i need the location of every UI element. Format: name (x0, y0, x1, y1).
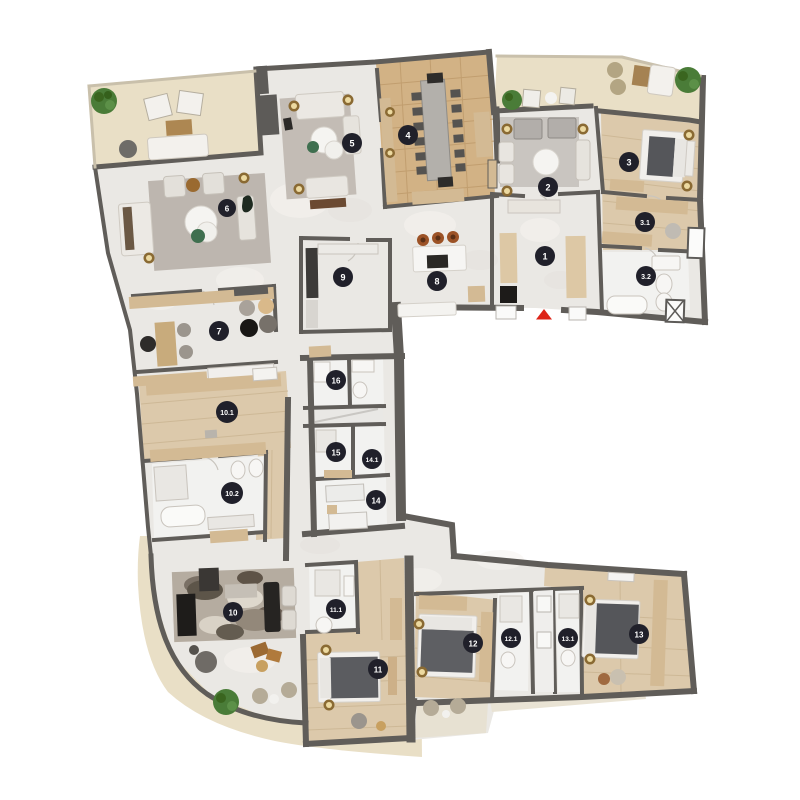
svg-text:14.1: 14.1 (366, 457, 379, 464)
svg-text:10: 10 (229, 609, 238, 618)
svg-text:10.2: 10.2 (225, 491, 239, 498)
svg-text:11: 11 (374, 666, 383, 675)
svg-text:4: 4 (405, 131, 410, 141)
svg-text:9: 9 (340, 273, 345, 283)
svg-text:16: 16 (332, 377, 341, 386)
svg-text:11.1: 11.1 (330, 607, 343, 614)
svg-text:13: 13 (635, 631, 644, 640)
svg-text:8: 8 (434, 277, 439, 287)
svg-text:12.1: 12.1 (505, 636, 518, 643)
svg-text:1: 1 (542, 252, 547, 262)
svg-text:2: 2 (545, 183, 550, 193)
svg-text:3.2: 3.2 (641, 274, 651, 281)
svg-text:3: 3 (626, 158, 631, 168)
svg-text:6: 6 (225, 205, 230, 214)
svg-text:5: 5 (349, 139, 354, 149)
svg-text:15: 15 (332, 449, 341, 458)
svg-text:3.1: 3.1 (640, 220, 650, 227)
svg-text:7: 7 (216, 327, 221, 337)
svg-text:13.1: 13.1 (562, 636, 575, 643)
svg-text:10.1: 10.1 (220, 410, 234, 417)
svg-text:14: 14 (372, 497, 381, 506)
svg-text:12: 12 (469, 640, 478, 649)
